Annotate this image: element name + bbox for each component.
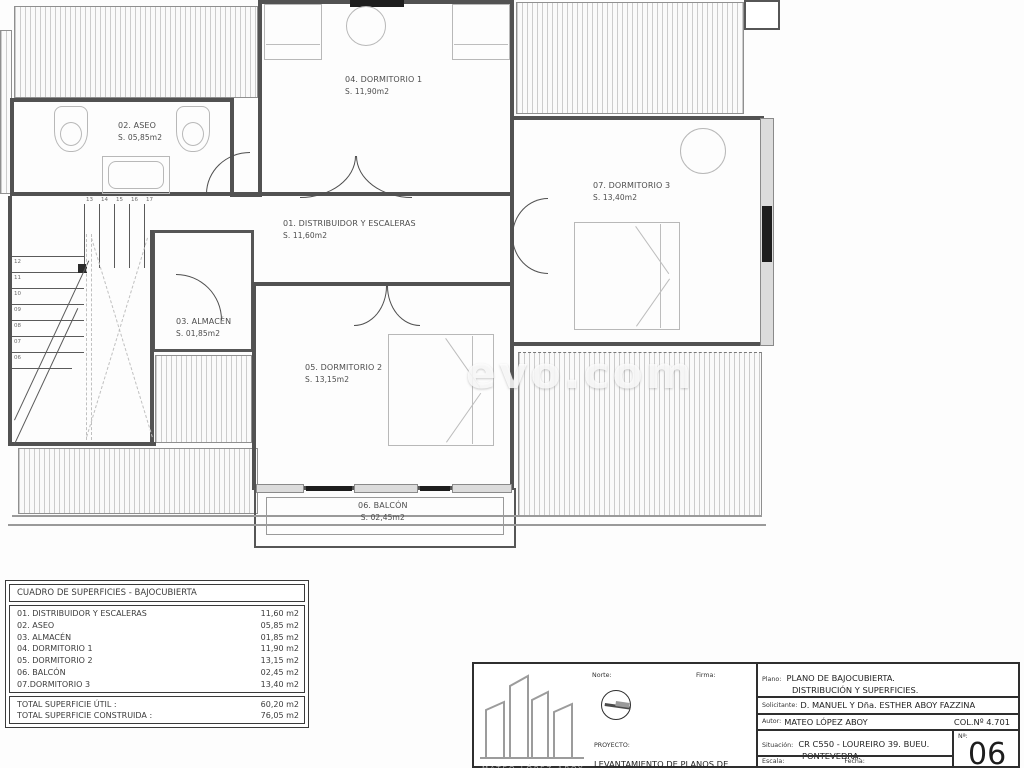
surface-table-totals: TOTAL SUPERFICIE ÚTIL : 60,20 m2 TOTAL S… [9, 696, 305, 724]
room-name: 07. DORMITORIO 3 [593, 180, 670, 192]
roof-hatch-below-almacen [155, 355, 252, 443]
stair-number: 12 [14, 259, 21, 265]
room-area: S. 13,40m2 [593, 192, 670, 204]
label-dormitorio-2: 05. DORMITORIO 2 S. 13,15m2 [305, 362, 382, 386]
surface-table: CUADRO DE SUPERFICIES - BAJOCUBIERTA 01.… [5, 580, 309, 728]
autor-label: Autor: [762, 718, 781, 725]
bed-dorm3 [574, 222, 680, 330]
eave-line-2 [8, 524, 766, 526]
stair-wall-right [150, 230, 154, 446]
bed-dorm1-left [264, 4, 322, 60]
row-label: 05. DORMITORIO 2 [17, 656, 93, 665]
balcon-window-left [306, 486, 352, 491]
stair-tread-v [129, 204, 130, 268]
stair-number: 13 [86, 197, 93, 203]
bed-dorm1-right-line [454, 44, 508, 45]
balcon-post-center [354, 484, 418, 493]
floor-plan: 13 14 15 16 17 12 11 10 09 08 07 06 [0, 0, 790, 570]
table-row: 06. BALCÓN 02,45 m2 [17, 668, 299, 677]
stair-number: 17 [146, 197, 153, 203]
stair-tread-v [114, 204, 115, 268]
stair-tread-v [144, 204, 145, 268]
stair-void-dash-v2 [91, 234, 92, 440]
row-label: TOTAL SUPERFICIE CONSTRUIDA : [17, 711, 152, 720]
stair-wall-bottom [8, 442, 156, 446]
plano-label: Plano: [762, 676, 781, 683]
bidet-bowl-icon [182, 122, 204, 146]
total-row: TOTAL SUPERFICIE CONSTRUIDA : 76,05 m2 [17, 711, 299, 720]
row-label: TOTAL SUPERFICIE ÚTIL : [17, 700, 117, 709]
room-name: 03. ALMACÉN [176, 316, 231, 328]
label-balcon: 06. BALCÓN S. 02,45m2 [358, 500, 408, 524]
room-area: S. 01,85m2 [176, 328, 231, 340]
solicitante-row: Solicitante: D. MANUEL Y Dña. ESTHER ABO… [758, 698, 1018, 715]
stair-number: 14 [101, 197, 108, 203]
title-block-left: MATEO LÓPEZ ABOY Norte: Firma: PROYECTO:… [474, 664, 758, 766]
solicitante-label: Solicitante: [762, 702, 797, 709]
stair-tread-h [12, 336, 84, 337]
room-area: S. 11,60m2 [283, 230, 416, 242]
row-label: 02. ASEO [17, 621, 54, 630]
floor-plan-sheet: 13 14 15 16 17 12 11 10 09 08 07 06 [0, 0, 1024, 768]
balcon-post-right [452, 484, 512, 493]
title-block-right: Plano: PLANO DE BAJOCUBIERTA. DISTRIBUCI… [758, 664, 1018, 766]
total-row: TOTAL SUPERFICIE ÚTIL : 60,20 m2 [17, 700, 299, 709]
row-label: 03. ALMACÉN [17, 633, 71, 642]
balcon-window-right [420, 486, 450, 491]
row-label: 06. BALCÓN [17, 668, 66, 677]
table-row: 04. DORMITORIO 1 11,90 m2 [17, 644, 299, 653]
stair-number: 08 [14, 323, 21, 329]
toilet-bowl-icon [60, 122, 82, 146]
row-value: 60,20 m2 [261, 700, 299, 709]
numero-label: Nª: [958, 733, 968, 740]
table-row: 01. DISTRIBUIDOR Y ESCALERAS 11,60 m2 [17, 609, 299, 618]
title-block: MATEO LÓPEZ ABOY Norte: Firma: PROYECTO:… [472, 662, 1020, 768]
room-area: S. 13,15m2 [305, 374, 382, 386]
numero-value: 06 [968, 740, 1006, 768]
window-dorm3-right [762, 206, 772, 262]
table-row: 05. DORMITORIO 2 13,15 m2 [17, 656, 299, 665]
plano-line2: DISTRIBUCIÓN Y SUPERFICIES. [762, 685, 1014, 695]
label-aseo: 02. ASEO S. 05,85m2 [118, 120, 162, 144]
label-distribuidor: 01. DISTRIBUIDOR Y ESCALERAS S. 11,60m2 [283, 218, 416, 242]
window-dorm1-top [350, 0, 404, 7]
stair-number: 06 [14, 355, 21, 361]
row-value: 11,60 m2 [261, 609, 299, 618]
stair-number: 15 [116, 197, 123, 203]
watermark: evo.com [466, 348, 695, 399]
situacion-cell: Situación: CR C550 - LOUREIRO 39. BUEU. … [758, 731, 954, 766]
row-label: 07.DORMITORIO 3 [17, 680, 90, 689]
stair-tread-h [12, 304, 84, 305]
stair-number: 07 [14, 339, 21, 345]
row-label: 04. DORMITORIO 1 [17, 644, 93, 653]
stair-tread-h [12, 288, 84, 289]
bathtub-inner-icon [108, 161, 164, 189]
numero-cell: Nª: 06 [954, 731, 1018, 766]
stair-tread-v [99, 204, 100, 268]
stair-number: 11 [14, 275, 21, 281]
stair-tread-h [12, 256, 84, 257]
room-area: S. 05,85m2 [118, 132, 162, 144]
stair-cut-line-1 [14, 260, 90, 420]
room-name: 01. DISTRIBUIDOR Y ESCALERAS [283, 218, 416, 230]
proyecto-text: LEVANTAMIENTO DE PLANOS DE [594, 759, 728, 768]
row-value: 11,90 m2 [261, 644, 299, 653]
room-area: S. 11,90m2 [345, 86, 422, 98]
roof-hatch-bottom-left [18, 448, 258, 514]
stair-tread-h [12, 368, 72, 369]
col-number: COL.Nº 4.701 [954, 717, 1014, 727]
row-value: 13,40 m2 [261, 680, 299, 689]
label-almacen: 03. ALMACÉN S. 01,85m2 [176, 316, 231, 340]
room-area: S. 02,45m2 [358, 512, 408, 524]
table-row: 03. ALMACÉN 01,85 m2 [17, 633, 299, 642]
surface-table-body: 01. DISTRIBUIDOR Y ESCALERAS 11,60 m2 02… [9, 605, 305, 693]
roof-hatch-top-left [14, 6, 258, 98]
escala-fecha-row: Escala: Fecha: [758, 755, 952, 766]
architect-logo-icon [480, 670, 588, 766]
stair-number: 10 [14, 291, 21, 297]
stair-tread-h [12, 352, 84, 353]
row-label: 01. DISTRIBUIDOR Y ESCALERAS [17, 609, 147, 618]
row-value: 05,85 m2 [261, 621, 299, 630]
plano-line1: PLANO DE BAJOCUBIERTA. [786, 673, 894, 683]
stair-number: 16 [131, 197, 138, 203]
room-name: 06. BALCÓN [358, 500, 408, 512]
balcon-post-left [256, 484, 304, 493]
situacion-numero-row: Situación: CR C550 - LOUREIRO 39. BUEU. … [758, 731, 1018, 766]
plano-row: Plano: PLANO DE BAJOCUBIERTA. DISTRIBUCI… [758, 664, 1018, 698]
table-row: 02. ASEO 05,85 m2 [17, 621, 299, 630]
row-value: 76,05 m2 [261, 711, 299, 720]
table-circle-dorm1 [346, 6, 386, 46]
autor-row: Autor: MATEO LÓPEZ ABOY COL.Nº 4.701 [758, 715, 1018, 732]
room-name: 02. ASEO [118, 120, 162, 132]
room-name: 05. DORMITORIO 2 [305, 362, 382, 374]
stair-tread-h [12, 272, 84, 273]
table-row: 07.DORMITORIO 3 13,40 m2 [17, 680, 299, 689]
bed-dorm1-left-line [266, 44, 320, 45]
row-value: 01,85 m2 [261, 633, 299, 642]
chimney-box [744, 0, 780, 30]
room-name: 04. DORMITORIO 1 [345, 74, 422, 86]
surface-table-title: CUADRO DE SUPERFICIES - BAJOCUBIERTA [9, 584, 305, 602]
proyecto-label: PROYECTO: [594, 742, 630, 749]
bed-dorm1-right [452, 4, 510, 60]
label-dormitorio-1: 04. DORMITORIO 1 S. 11,90m2 [345, 74, 422, 98]
norte-label: Norte: [592, 672, 612, 679]
label-dormitorio-3: 07. DORMITORIO 3 S. 13,40m2 [593, 180, 670, 204]
stair-void-diag-2 [86, 238, 148, 437]
stair-number: 09 [14, 307, 21, 313]
solicitante-value: D. MANUEL Y Dña. ESTHER ABOY FAZZINA [800, 700, 975, 710]
firma-label: Firma: [696, 672, 716, 679]
roof-hatch-top-right [516, 2, 744, 114]
situacion-line1: CR C550 - LOUREIRO 39. BUEU. [798, 739, 929, 749]
row-value: 02,45 m2 [261, 668, 299, 677]
stair-void-dash-v1 [86, 234, 87, 440]
escala-label: Escala: [762, 758, 784, 765]
situacion-text: Situación: CR C550 - LOUREIRO 39. BUEU. … [758, 731, 952, 755]
bed-dorm3-line [660, 224, 661, 328]
row-value: 13,15 m2 [261, 656, 299, 665]
table-circle-dorm3 [680, 128, 726, 174]
autor-value: MATEO LÓPEZ ABOY [784, 717, 867, 727]
stair-cut-line-2 [14, 308, 79, 445]
fecha-label: Fecha: [844, 758, 865, 765]
situacion-label: Situación: [762, 742, 793, 749]
